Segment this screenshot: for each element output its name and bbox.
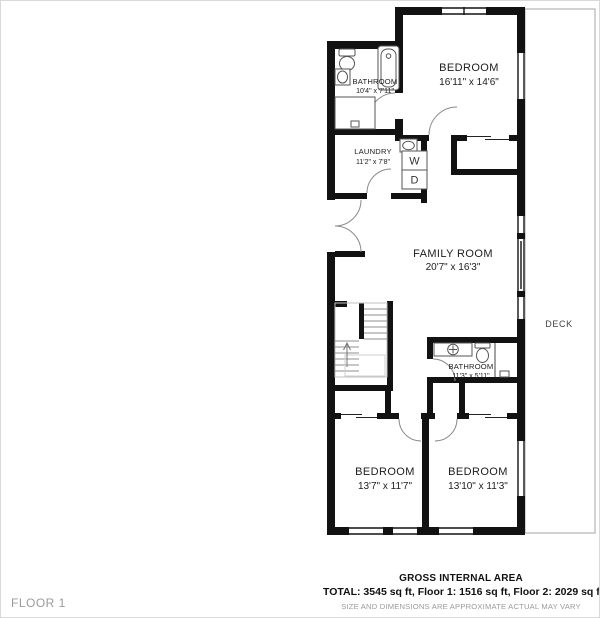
room-dims-bedroom1: 16'11" x 14'6" [439, 77, 499, 88]
floor-plan-page: BATHROOM 10'4" x 7'11" BEDROOM 16'11" x … [0, 0, 600, 618]
size-disclaimer: SIZE AND DIMENSIONS ARE APPROXIMATE ACTU… [323, 602, 599, 611]
room-label-laundry: LAUNDRY [354, 147, 392, 156]
room-label-family-room: FAMILY ROOM [413, 248, 493, 260]
room-labels: BATHROOM 10'4" x 7'11" BEDROOM 16'11" x … [353, 62, 573, 492]
room-dims-family-room: 20'7" x 16'3" [426, 262, 481, 273]
sink-1 [335, 69, 350, 85]
room-label-bedroom2: BEDROOM [355, 466, 415, 478]
shower [335, 97, 375, 129]
deck-label: DECK [545, 319, 572, 329]
room-dims-bathroom1: 10'4" x 7'11" [356, 88, 394, 95]
deck-outline [525, 9, 595, 533]
room-label-bathroom1: BATHROOM [353, 77, 398, 86]
room-dims-bedroom3: 13'10" x 11'3" [448, 481, 508, 492]
toilet-2 [475, 343, 490, 363]
room-dims-bedroom2: 13'7" x 11'7" [358, 481, 413, 492]
washer-label: W [409, 156, 420, 168]
room-label-bathroom2: BATHROOM [449, 362, 494, 371]
floor-number-label: FLOOR 1 [11, 596, 66, 610]
toilet-1 [339, 49, 355, 71]
room-dims-bathroom2: 11'3" x 5'11" [452, 373, 490, 380]
gross-area-title: GROSS INTERNAL AREA [323, 573, 599, 584]
room-label-bedroom3: BEDROOM [448, 466, 508, 478]
gross-area-summary: GROSS INTERNAL AREA TOTAL: 3545 sq ft, F… [323, 573, 599, 611]
floor-plan-drawing: BATHROOM 10'4" x 7'11" BEDROOM 16'11" x … [1, 1, 600, 618]
gross-area-totals: TOTAL: 3545 sq ft, Floor 1: 1516 sq ft, … [323, 586, 599, 598]
room-label-bedroom1: BEDROOM [439, 62, 499, 74]
dryer-label: D [411, 175, 419, 187]
vanity-2 [434, 343, 472, 356]
room-dims-laundry: 11'2" x 7'8" [356, 159, 390, 166]
laundry-sink [400, 139, 417, 152]
